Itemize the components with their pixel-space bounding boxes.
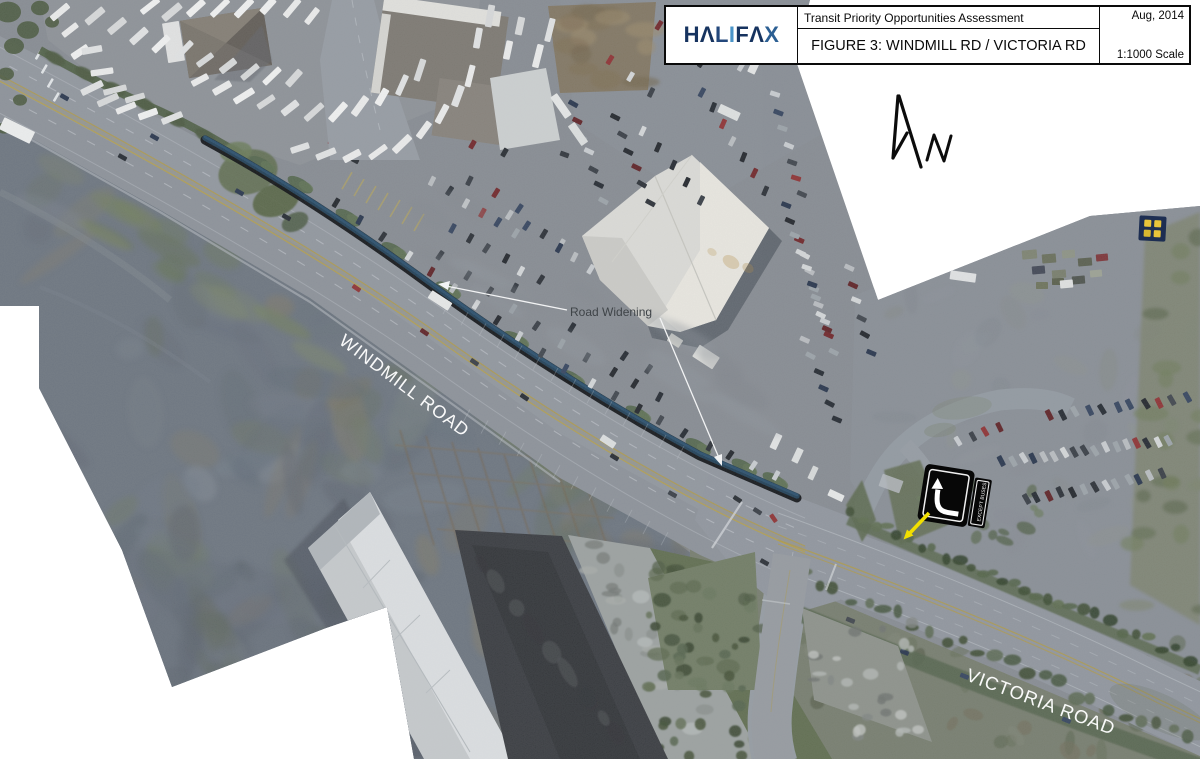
svg-text:Road Widening: Road Widening: [570, 305, 652, 319]
